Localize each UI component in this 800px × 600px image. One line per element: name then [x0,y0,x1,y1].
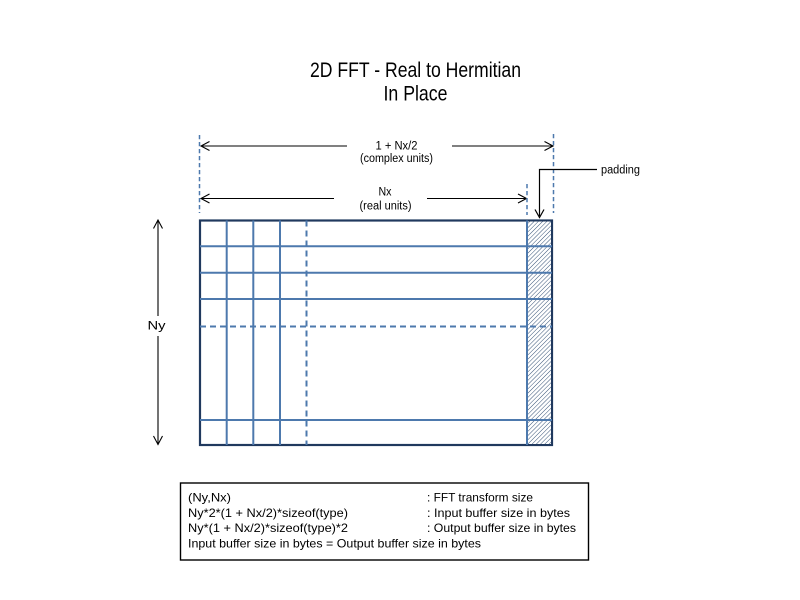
svg-text:2D FFT - Real to Hermitian: 2D FFT - Real to Hermitian [310,59,521,82]
svg-text:(real units): (real units) [360,201,412,213]
svg-text:1 + Nx/2: 1 + Nx/2 [376,141,418,153]
svg-text:: Output buffer size in bytes: : Output buffer size in bytes [427,521,576,535]
svg-text:: FFT transform size: : FFT transform size [427,491,533,505]
svg-text:: Input buffer size in bytes: : Input buffer size in bytes [427,506,570,520]
svg-text:In Place: In Place [384,83,448,106]
svg-text:(complex units): (complex units) [360,153,433,165]
svg-text:(Ny,Nx): (Ny,Nx) [188,491,231,505]
svg-text:Ny*(1 + Nx/2)*sizeof(type)*2: Ny*(1 + Nx/2)*sizeof(type)*2 [188,521,348,535]
svg-text:Nx: Nx [379,187,392,199]
svg-text:Ny: Ny [148,321,166,333]
svg-text:padding: padding [601,165,640,177]
svg-text:Ny*2*(1 + Nx/2)*sizeof(type): Ny*2*(1 + Nx/2)*sizeof(type) [188,506,348,520]
svg-text:Input buffer size in bytes = O: Input buffer size in bytes = Output buff… [188,536,481,550]
